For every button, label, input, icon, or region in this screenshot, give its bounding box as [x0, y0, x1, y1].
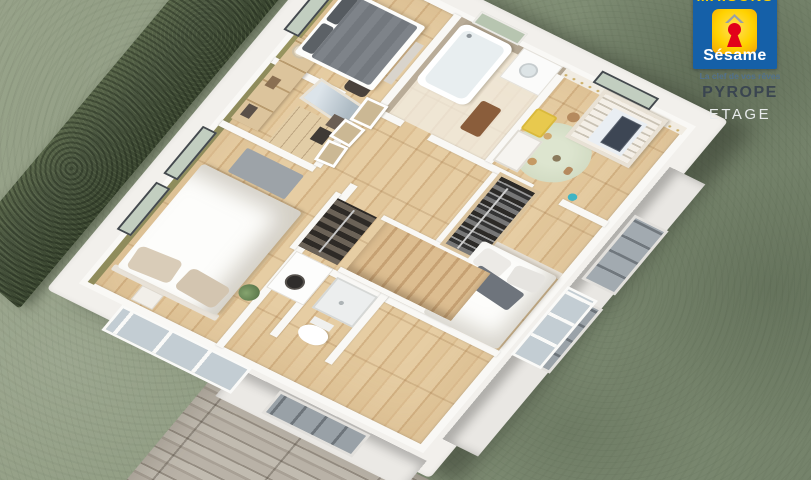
- brand-tagline: La clef de vos rêves: [674, 71, 806, 81]
- keyhole-icon-stem: [727, 33, 742, 47]
- floor-label: ETAGE: [674, 106, 806, 123]
- roof-icon: [725, 14, 744, 23]
- sesame-logo: MAISONS Sésame: [693, 0, 777, 69]
- logo-top-text: MAISONS: [693, 0, 777, 5]
- house-model-name: PYROPE: [674, 84, 806, 102]
- brand-name: Sésame: [693, 47, 777, 65]
- floor-plan-scene: MAISONS Sésame La clef de vos rêves PYRO…: [0, 0, 811, 480]
